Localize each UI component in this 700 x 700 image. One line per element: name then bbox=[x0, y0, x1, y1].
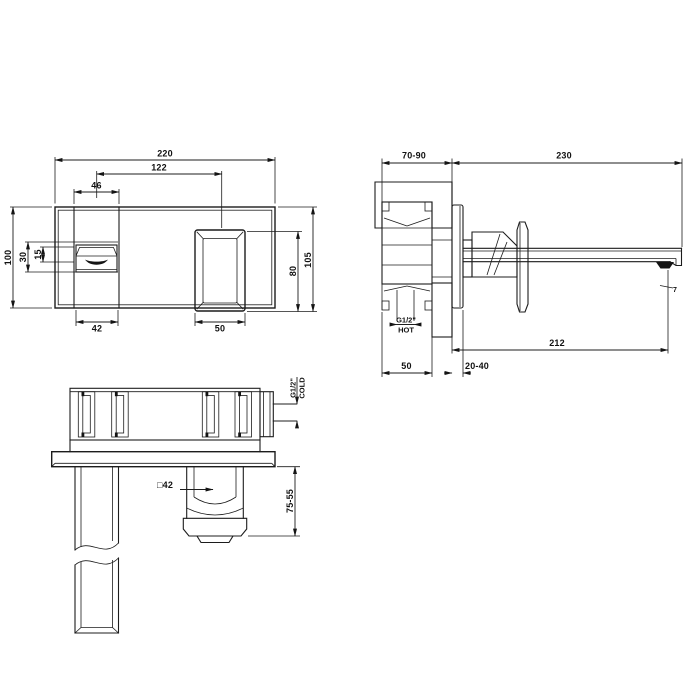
mounting-clips bbox=[78, 392, 251, 437]
dim-label-50-side: 50 bbox=[401, 361, 411, 371]
dim-label-70-90: 70-90 bbox=[402, 151, 426, 161]
dim-label-75-55: 75-55 bbox=[285, 489, 295, 513]
dim-spout-lip: 15 bbox=[33, 247, 74, 262]
dim-aerator-detail: 7 bbox=[660, 286, 677, 295]
dim-overall-width: 220 bbox=[55, 149, 275, 204]
side-view: G1/2" HOT bbox=[375, 151, 682, 378]
rough-in-body bbox=[382, 202, 452, 321]
front-plate bbox=[55, 207, 275, 308]
cold-label: COLD bbox=[298, 377, 307, 399]
dim-spout-base-width: 42 bbox=[76, 310, 118, 334]
dim-label-20-40: 20-40 bbox=[465, 361, 489, 371]
front-spout bbox=[74, 207, 119, 308]
dim-label-105: 105 bbox=[303, 252, 313, 268]
hot-thread-label: G1/2" bbox=[396, 316, 416, 325]
wall-section bbox=[375, 182, 452, 337]
hot-inlet-callout: G1/2" HOT bbox=[390, 316, 421, 335]
side-plate bbox=[452, 205, 463, 308]
dim-wall-depth: 70-90 bbox=[382, 151, 452, 203]
aerator-front bbox=[85, 260, 108, 265]
dim-label-30: 30 bbox=[18, 252, 28, 262]
plan-handle bbox=[183, 467, 246, 543]
technical-drawing: 220 122 46 100 30 bbox=[0, 0, 700, 700]
dim-label-100: 100 bbox=[3, 250, 13, 266]
dim-label-46: 46 bbox=[91, 181, 101, 191]
dim-label-220: 220 bbox=[157, 149, 173, 159]
dim-label-42: 42 bbox=[92, 324, 102, 334]
dim-handle-height: 80 bbox=[247, 232, 317, 312]
plan-view: G1/2" COLD bbox=[52, 377, 307, 633]
dim-label-122: 122 bbox=[151, 163, 167, 173]
plan-spout bbox=[75, 467, 119, 633]
dim-label-212: 212 bbox=[549, 338, 565, 348]
dim-overall-height: 105 bbox=[278, 207, 317, 312]
dim-label-sq42: □42 bbox=[157, 480, 173, 490]
dim-handle-width: 50 bbox=[195, 313, 245, 334]
dim-label-230: 230 bbox=[556, 151, 572, 161]
side-handle bbox=[463, 222, 528, 312]
dim-spout-to-handle: 122 bbox=[97, 163, 222, 229]
side-spout bbox=[463, 248, 682, 268]
plan-body bbox=[70, 388, 297, 451]
dim-label-7: 7 bbox=[673, 287, 677, 294]
handle-section-callout: □42 bbox=[157, 480, 213, 490]
hot-label: HOT bbox=[398, 326, 414, 335]
dim-plate-adjust: 20-40 bbox=[444, 310, 489, 377]
dim-spout-width: 46 bbox=[74, 181, 119, 205]
dim-label-80: 80 bbox=[288, 266, 298, 276]
dim-handle-projection: 75-55 bbox=[248, 467, 300, 536]
aerator-side bbox=[656, 262, 674, 269]
cold-inlet-callout: G1/2" COLD bbox=[289, 377, 307, 428]
dim-label-50-front: 50 bbox=[215, 324, 225, 334]
dim-label-15: 15 bbox=[33, 249, 43, 259]
front-handle bbox=[195, 230, 245, 311]
plan-plate bbox=[52, 452, 275, 467]
front-view: 220 122 46 100 30 bbox=[3, 149, 317, 334]
drawing-canvas: 220 122 46 100 30 bbox=[0, 0, 700, 700]
cold-thread-label: G1/2" bbox=[289, 378, 298, 398]
dim-aerator-reach: 212 bbox=[452, 270, 668, 354]
